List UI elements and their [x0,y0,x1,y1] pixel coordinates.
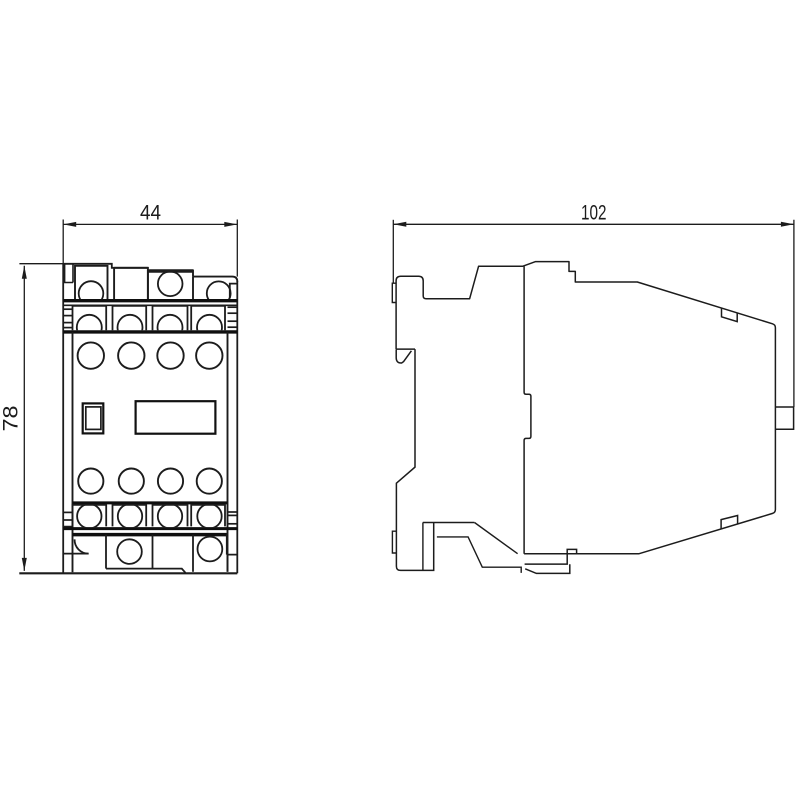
svg-text:102: 102 [581,201,607,224]
svg-text:78: 78 [0,406,23,432]
svg-text:44: 44 [140,202,161,225]
